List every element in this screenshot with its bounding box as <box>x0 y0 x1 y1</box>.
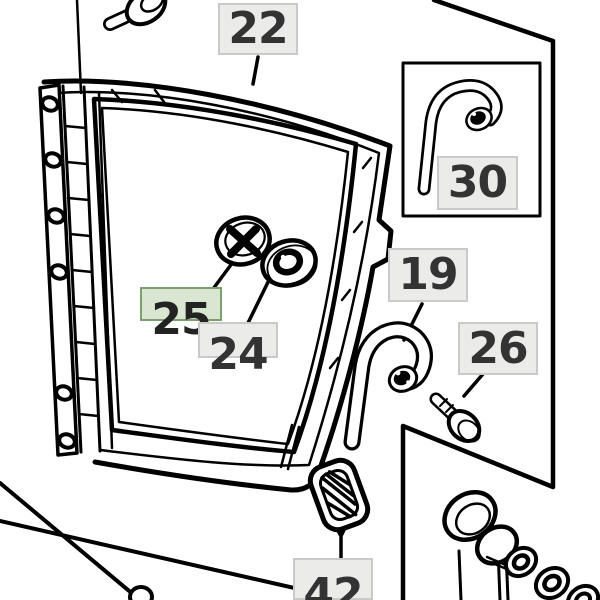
grommet-42-drawing <box>306 456 372 534</box>
part-number-19: 19 <box>398 253 457 297</box>
part-number-42: 42 <box>303 573 362 600</box>
bolt-washer-cluster-drawing <box>435 482 600 600</box>
part-label-42[interactable]: 42 <box>293 558 373 600</box>
exploded-view-drawing <box>0 0 600 600</box>
part-number-26: 26 <box>468 327 527 371</box>
part-number-24: 24 <box>208 333 267 377</box>
part-label-22[interactable]: 22 <box>218 3 298 55</box>
part-label-30[interactable]: 30 <box>437 156 518 210</box>
bolt-26-drawing <box>436 399 485 447</box>
part-number-22: 22 <box>228 7 287 51</box>
part-label-26[interactable]: 26 <box>458 322 538 375</box>
part-label-24[interactable]: 24 <box>198 322 278 358</box>
latch-hook-19-drawing <box>352 330 424 442</box>
part-label-25-selected[interactable]: 25 <box>140 287 222 321</box>
top-screw-drawing <box>110 0 172 31</box>
part-number-30: 30 <box>448 161 507 205</box>
parts-diagram: 22 30 19 26 25 24 42 <box>0 0 600 600</box>
part-label-19[interactable]: 19 <box>388 248 468 302</box>
